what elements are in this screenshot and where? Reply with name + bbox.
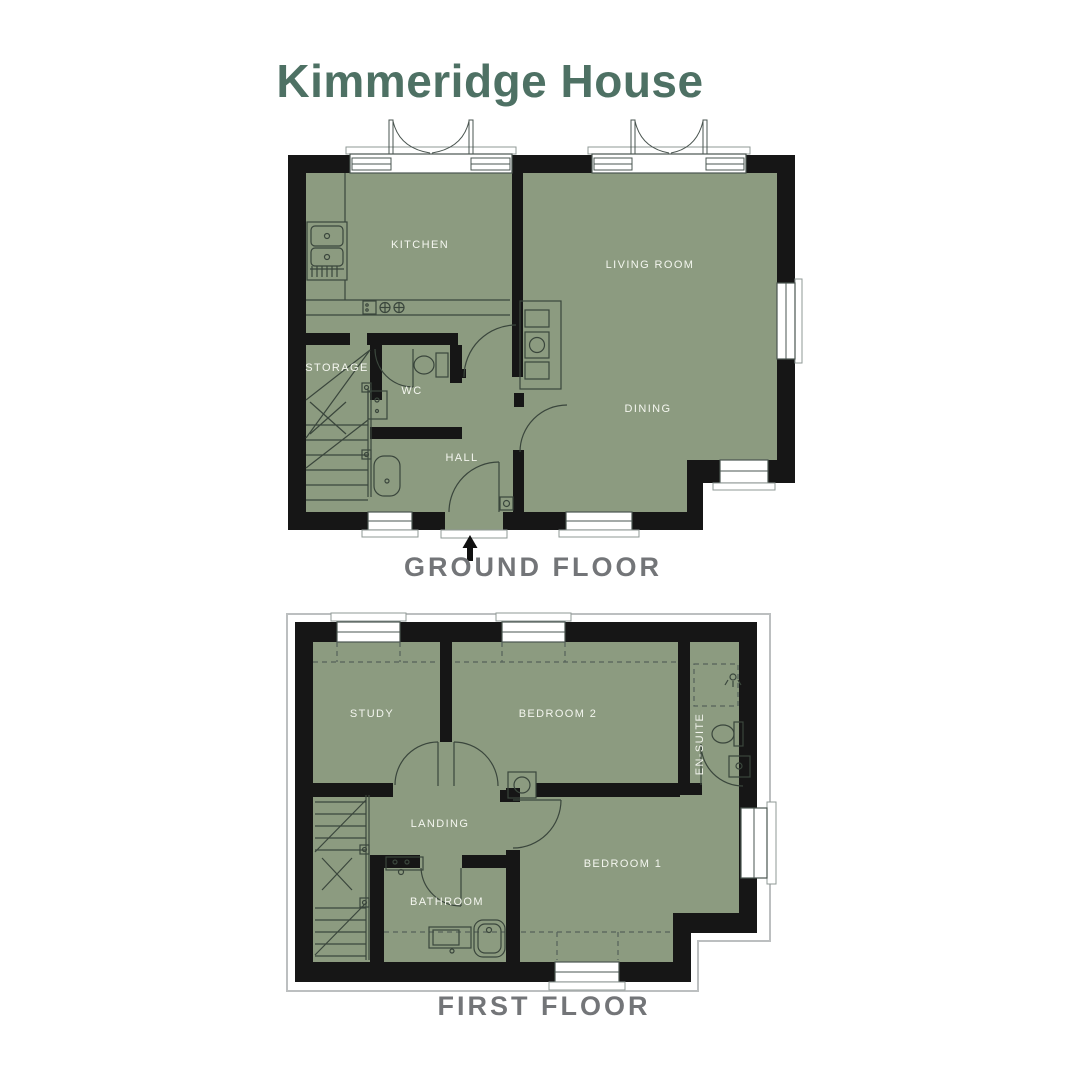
ground-floor-plan: KITCHEN LIVING ROOM STORAGE WC HALL DINI… — [288, 120, 802, 561]
room-label-living-room: LIVING ROOM — [606, 259, 695, 271]
first-floor-plan: STUDY BEDROOM 2 EN-SUITE LANDING BATHROO… — [287, 613, 776, 991]
page: Kimmeridge House — [0, 0, 1080, 1080]
room-label-hall: HALL — [445, 452, 478, 464]
first-floor-caption: FIRST FLOOR — [284, 991, 804, 1022]
room-label-storage: STORAGE — [305, 362, 368, 374]
room-label-wc: WC — [401, 385, 422, 397]
room-label-landing: LANDING — [411, 818, 470, 830]
room-label-kitchen: KITCHEN — [391, 239, 449, 251]
kitchen-patio-doors — [346, 120, 516, 173]
room-label-bathroom: BATHROOM — [410, 896, 484, 908]
living-room-patio-doors — [588, 120, 750, 173]
room-label-bedroom-2: BEDROOM 2 — [519, 708, 598, 720]
room-label-study: STUDY — [350, 708, 394, 720]
floor-plan-drawing: KITCHEN LIVING ROOM STORAGE WC HALL DINI… — [0, 0, 1080, 1080]
room-label-dining: DINING — [625, 403, 672, 415]
ground-floor-caption: GROUND FLOOR — [273, 552, 793, 583]
room-label-bedroom-1: BEDROOM 1 — [584, 858, 663, 870]
room-label-en-suite: EN-SUITE — [694, 713, 706, 776]
